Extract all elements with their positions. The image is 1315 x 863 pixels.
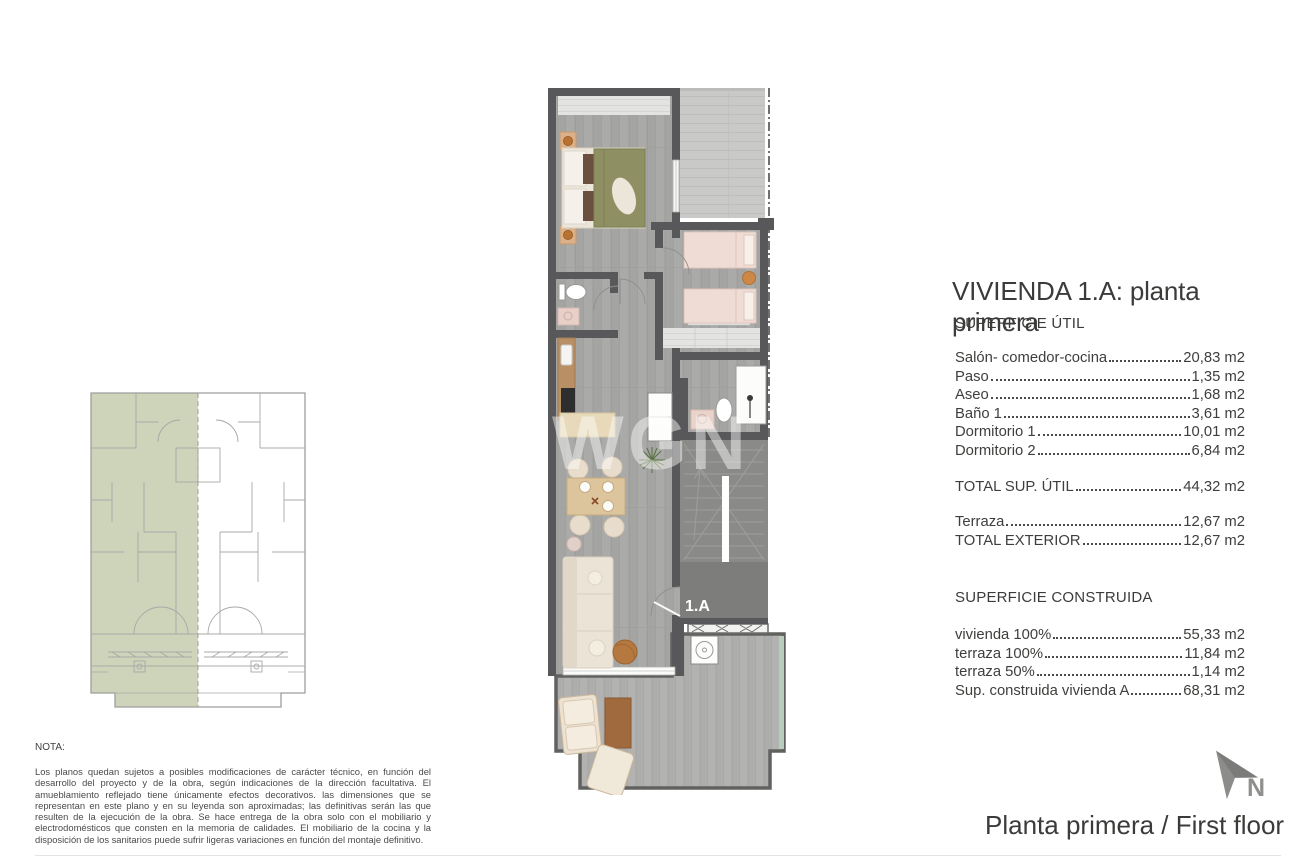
dotted-leader [991, 397, 1190, 399]
dotted-leader [1037, 674, 1190, 676]
dotted-leader [1038, 434, 1182, 436]
area-value: 44,32 m2 [1183, 479, 1245, 495]
area-row: Sup. construida vivienda A 68,31 m2 [955, 683, 1245, 702]
dotted-leader [1006, 524, 1181, 526]
stair-handrail [722, 476, 729, 562]
vanity [691, 410, 714, 429]
glass-railing [779, 636, 784, 749]
dotted-leader [1083, 543, 1182, 545]
area-row: Dormitorio 2 6,84 m2 [955, 443, 1245, 462]
dotted-leader [1131, 693, 1181, 695]
plan-sheet: 1.A [0, 0, 1315, 863]
area-value: 12,67 m2 [1183, 533, 1245, 549]
area-value: 1,14 m2 [1192, 664, 1245, 680]
area-label: vivienda 100% [955, 627, 1051, 643]
closet [558, 96, 670, 115]
unit-label: 1.A [685, 598, 710, 615]
area-row: vivienda 100% 55,33 m2 [955, 627, 1245, 646]
dotted-leader [1038, 453, 1190, 455]
pouf [567, 537, 581, 551]
area-label: Baño 1 [955, 406, 1002, 422]
terrace-furniture [558, 694, 635, 795]
dining-table [567, 478, 625, 515]
floor-plan: 1.A [548, 88, 792, 795]
area-label: Aseo [955, 387, 989, 403]
area-value: 11,84 m2 [1184, 646, 1245, 662]
superficie-construida-rows: vivienda 100% 55,33 m2 terraza 100% 11,8… [955, 627, 1245, 701]
area-row: terraza 100% 11,84 m2 [955, 646, 1245, 665]
upper-terrace-floor [680, 90, 765, 218]
dotted-leader [1076, 489, 1182, 491]
floor-title: Planta primera / First floor [985, 810, 1285, 841]
area-value: 1,68 m2 [1192, 387, 1245, 403]
toilet [716, 398, 732, 422]
area-label: TOTAL EXTERIOR [955, 533, 1081, 549]
outdoor-table [605, 698, 631, 748]
dotted-leader [1109, 360, 1181, 362]
area-label: Paso [955, 369, 989, 385]
area-value: 6,84 m2 [1192, 443, 1245, 459]
area-row: TOTAL SUP. ÚTIL 44,32 m2 [955, 479, 1245, 498]
superficie-util-heading: SUPERFICIE ÚTIL [955, 315, 1085, 332]
terrace-railing-hatch [688, 624, 768, 633]
area-value: 20,83 m2 [1183, 350, 1245, 366]
footer-rule [35, 855, 1281, 856]
stairwell: 1.A [680, 440, 768, 618]
nota-heading: NOTA: [35, 742, 65, 753]
shower-room [736, 366, 766, 424]
area-row: Baño 1 3,61 m2 [955, 406, 1245, 425]
dotted-leader [1045, 656, 1182, 658]
closet [663, 328, 760, 348]
area-label: Terraza [955, 514, 1004, 530]
superficie-util-rows: Salón- comedor-cocina 20,83 m2 Paso 1,35… [955, 350, 1245, 462]
dotted-leader [1004, 416, 1190, 418]
highlighted-unit [91, 393, 198, 707]
area-label: Sup. construida vivienda A [955, 683, 1129, 699]
area-label: terraza 50% [955, 664, 1035, 680]
area-row: terraza 50% 1,14 m2 [955, 664, 1245, 683]
washing-machine [691, 636, 718, 664]
double-bed [562, 148, 645, 228]
superficie-construida-heading: SUPERFICIE CONSTRUIDA [955, 589, 1153, 606]
nota-text: Los planos quedan sujetos a posibles mod… [35, 766, 431, 845]
dotted-leader [1053, 637, 1181, 639]
total-util-row: TOTAL SUP. ÚTIL 44,32 m2 [955, 479, 1245, 498]
area-value: 10,01 m2 [1183, 424, 1245, 440]
area-label: Salón- comedor-cocina [955, 350, 1107, 366]
toilet [566, 285, 586, 300]
key-plan [78, 382, 318, 712]
area-label: TOTAL SUP. ÚTIL [955, 479, 1074, 495]
north-label: N [1247, 774, 1265, 803]
area-row: Paso 1,35 m2 [955, 369, 1245, 388]
area-row: Dormitorio 1 10,01 m2 [955, 424, 1245, 443]
stove [561, 388, 575, 414]
kitchen-sink [561, 345, 572, 365]
area-label: Dormitorio 1 [955, 424, 1036, 440]
area-row: Aseo 1,68 m2 [955, 387, 1245, 406]
exterior-rows: Terraza 12,67 m2 TOTAL EXTERIOR 12,67 m2 [955, 514, 1245, 551]
area-row: Terraza 12,67 m2 [955, 514, 1245, 533]
dotted-leader [991, 379, 1190, 381]
area-value: 1,35 m2 [1192, 369, 1245, 385]
area-row: Salón- comedor-cocina 20,83 m2 [955, 350, 1245, 369]
kitchen-island [560, 413, 615, 437]
terrace-rail [680, 88, 765, 91]
area-value: 55,33 m2 [1183, 627, 1245, 643]
area-label: terraza 100% [955, 646, 1043, 662]
area-value: 3,61 m2 [1192, 406, 1245, 422]
nightstand [743, 272, 756, 285]
area-value: 68,31 m2 [1183, 683, 1245, 699]
sink [558, 308, 579, 325]
area-row: TOTAL EXTERIOR 12,67 m2 [955, 533, 1245, 552]
area-value: 12,67 m2 [1183, 514, 1245, 530]
area-label: Dormitorio 2 [955, 443, 1036, 459]
